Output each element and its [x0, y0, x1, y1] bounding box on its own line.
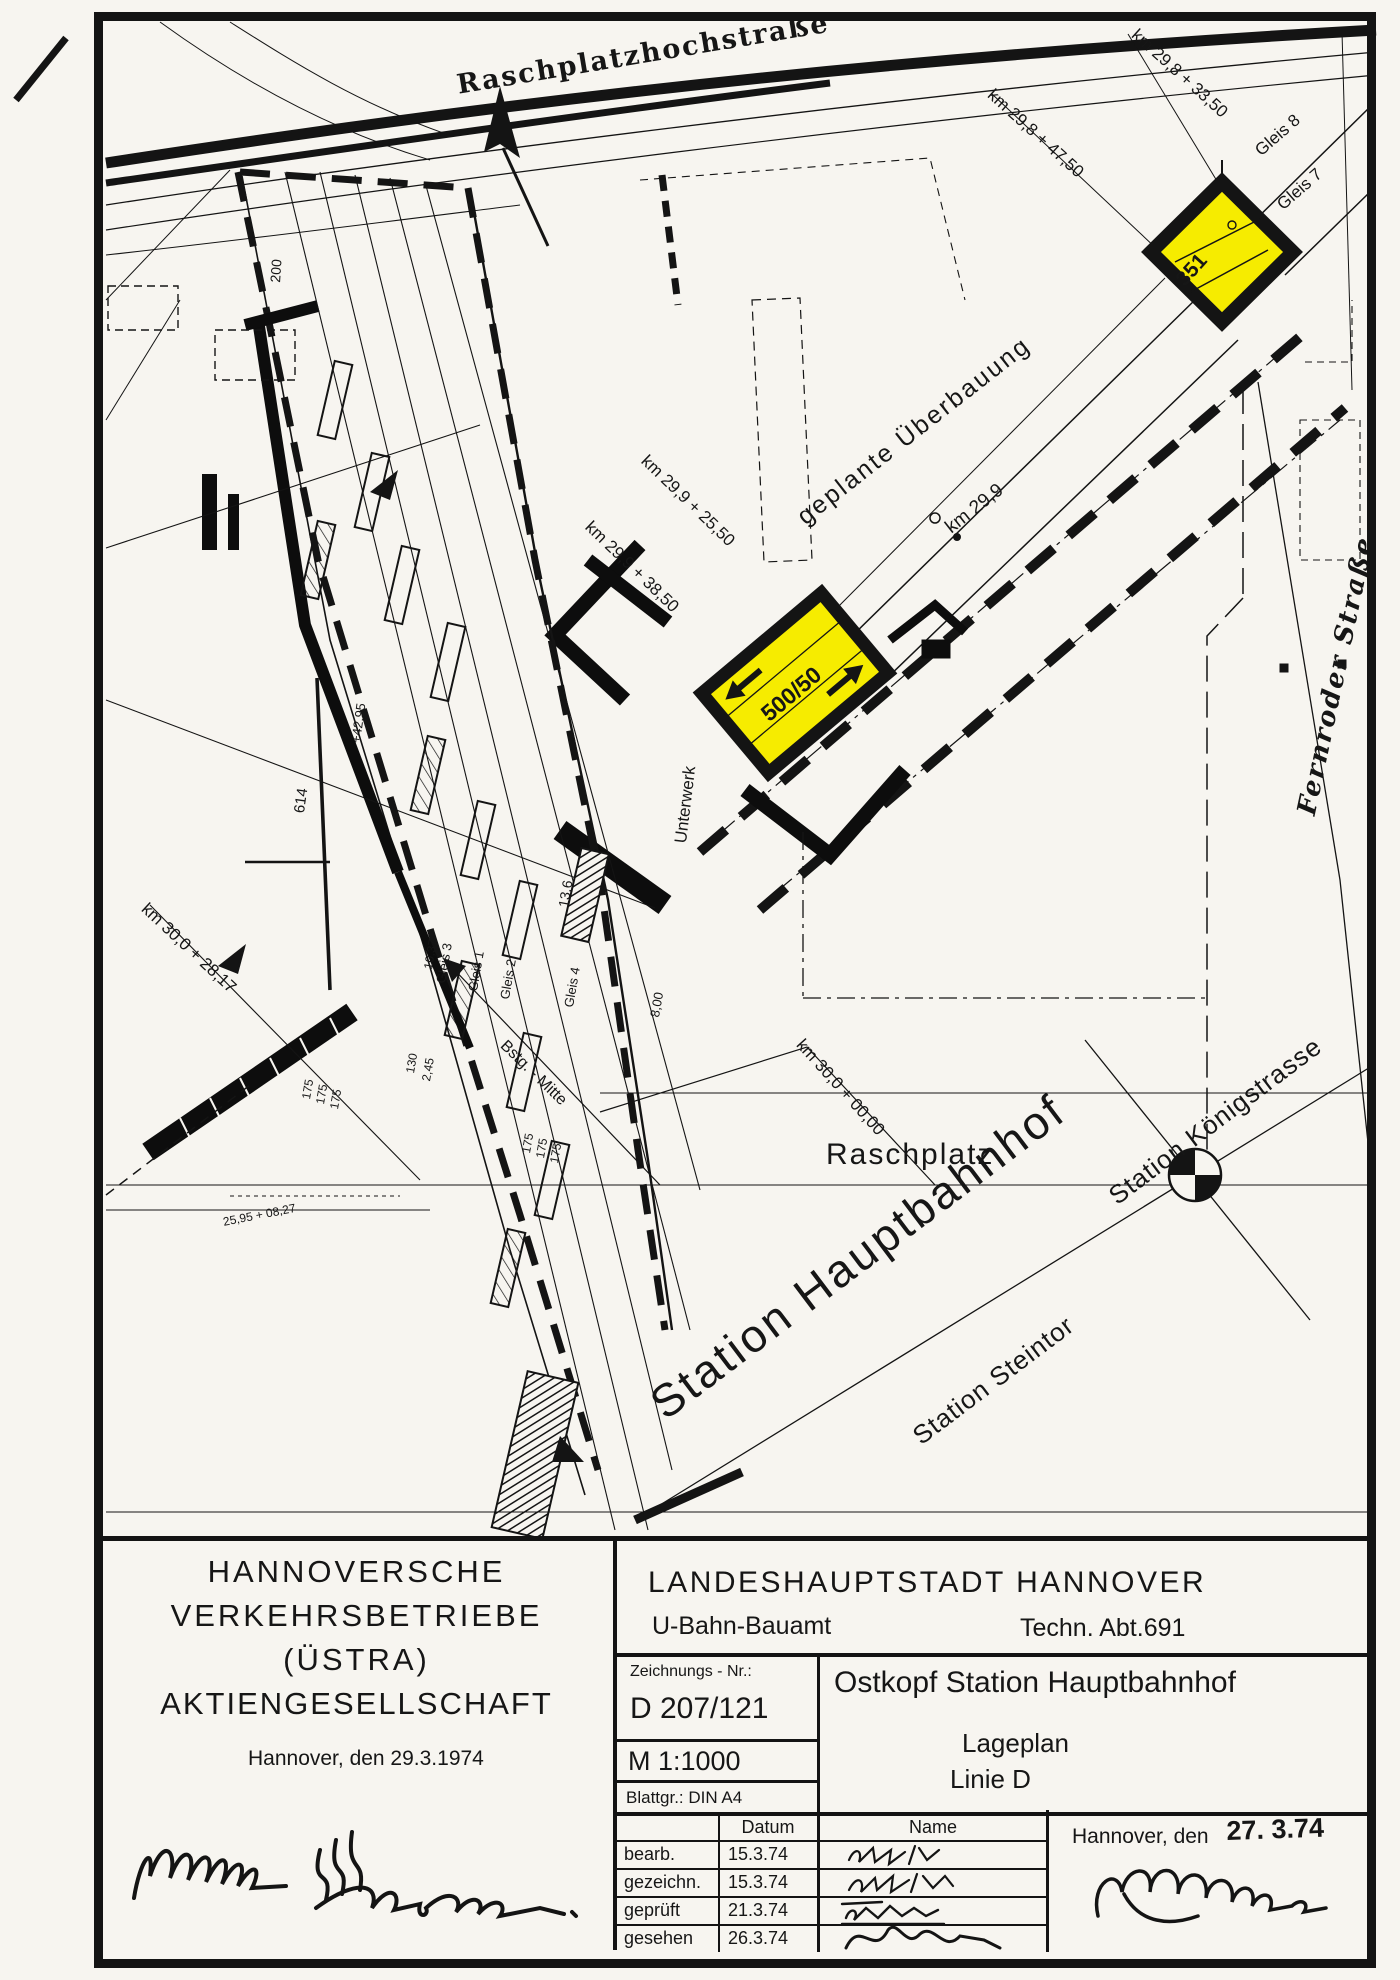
- scan-mark: [16, 38, 66, 100]
- sheet-border: [94, 12, 1376, 1968]
